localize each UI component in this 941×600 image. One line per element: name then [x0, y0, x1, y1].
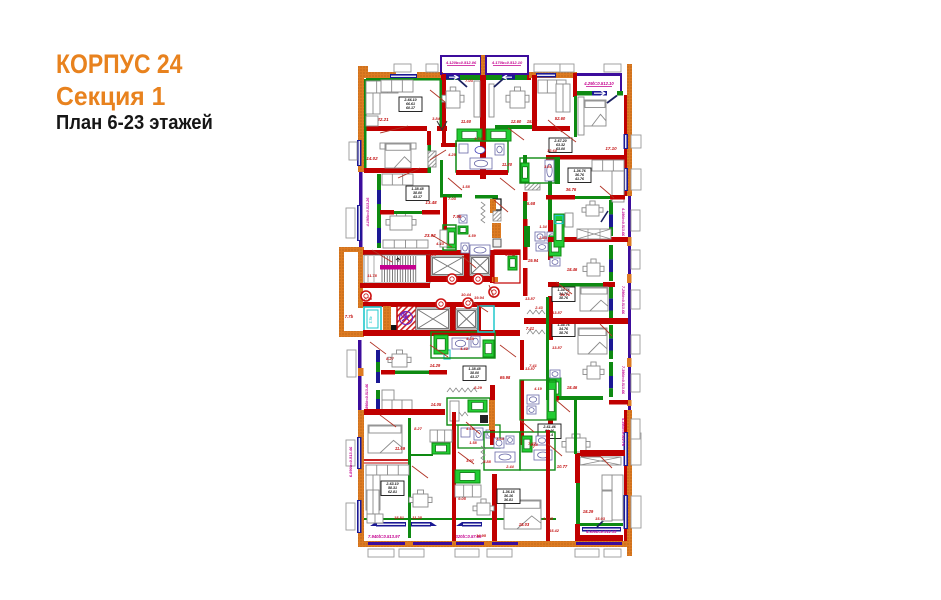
svg-text:11.60: 11.60 [461, 119, 472, 124]
svg-text:3.84: 3.84 [432, 116, 441, 121]
svg-text:12.60: 12.60 [511, 119, 522, 124]
svg-text:6.890b=0.513.46: 6.890b=0.513.46 [348, 446, 353, 477]
svg-text:69.98: 69.98 [500, 375, 511, 380]
svg-text:1.58: 1.58 [462, 184, 471, 189]
svg-text:7.7b: 7.7b [364, 296, 373, 301]
svg-text:7.03: 7.03 [465, 78, 474, 83]
svg-text:43.17: 43.17 [412, 195, 423, 199]
svg-text:14.05: 14.05 [431, 402, 442, 407]
svg-text:4.25: 4.25 [427, 252, 437, 257]
svg-text:62.81: 62.81 [388, 490, 397, 494]
svg-text:34.76: 34.76 [560, 292, 571, 297]
svg-text:3.81: 3.81 [544, 164, 553, 169]
svg-text:4.29b=0.512.10: 4.29b=0.512.10 [583, 81, 614, 86]
svg-text:4.190b=0.513.26: 4.190b=0.513.26 [366, 197, 370, 228]
svg-text:14.29: 14.29 [430, 363, 441, 368]
svg-text:18.46: 18.46 [567, 267, 578, 272]
svg-text:4.300b=0.512.15: 4.300b=0.512.15 [585, 529, 617, 534]
svg-text:4.390b=0.512.76: 4.390b=0.512.76 [621, 417, 625, 447]
svg-text:18.46: 18.46 [567, 385, 578, 390]
svg-text:2.44: 2.44 [505, 465, 514, 469]
svg-text:7.7b: 7.7b [345, 314, 354, 319]
svg-text:9.05: 9.05 [458, 496, 467, 501]
svg-text:36.81: 36.81 [504, 498, 513, 502]
svg-text:7.290b=0.513.66: 7.290b=0.513.66 [621, 286, 625, 315]
svg-text:63.00: 63.00 [556, 147, 565, 151]
svg-text:14.95: 14.95 [543, 516, 554, 521]
svg-text:7.96: 7.96 [453, 214, 462, 219]
svg-text:41.76: 41.76 [574, 177, 585, 181]
svg-text:3.64: 3.64 [496, 436, 505, 441]
svg-text:19.94: 19.94 [528, 258, 539, 263]
svg-text:19.94: 19.94 [505, 252, 516, 257]
svg-text:19.94: 19.94 [474, 295, 485, 300]
svg-text:17.10: 17.10 [605, 146, 617, 151]
svg-text:2.43: 2.43 [534, 306, 543, 310]
svg-text:7.03: 7.03 [448, 196, 457, 201]
svg-text:12.60: 12.60 [547, 148, 558, 153]
svg-text:5.88: 5.88 [483, 459, 492, 464]
svg-text:14.02: 14.02 [366, 156, 378, 161]
svg-text:1.34: 1.34 [539, 225, 547, 229]
svg-text:11.78: 11.78 [367, 273, 377, 278]
svg-text:60.17: 60.17 [406, 106, 416, 110]
svg-text:7.7b: 7.7b [369, 316, 373, 324]
svg-text:43.17: 43.17 [469, 375, 480, 379]
svg-text:5.68: 5.68 [527, 201, 536, 206]
svg-text:4.25: 4.25 [447, 152, 457, 157]
svg-text:10.77: 10.77 [557, 464, 568, 469]
svg-text:38.76: 38.76 [559, 331, 569, 335]
svg-text:52.60: 52.60 [555, 116, 566, 121]
svg-text:13.87: 13.87 [552, 345, 563, 350]
svg-text:4.170b=0.512.10: 4.170b=0.512.10 [491, 60, 523, 65]
svg-text:8.29: 8.29 [474, 385, 483, 390]
svg-text:7.390b=0.513.66: 7.390b=0.513.66 [621, 366, 625, 395]
svg-text:1.58: 1.58 [469, 441, 477, 445]
svg-text:4.43: 4.43 [435, 241, 445, 246]
svg-text:11.25: 11.25 [412, 515, 422, 520]
svg-text:8.27: 8.27 [414, 426, 423, 431]
svg-text:1.34: 1.34 [474, 136, 483, 141]
svg-text:4.39: 4.39 [465, 336, 475, 341]
svg-text:6.890b=0.513.46: 6.890b=0.513.46 [365, 383, 369, 412]
svg-text:8.27: 8.27 [386, 356, 395, 361]
svg-text:15.81: 15.81 [394, 515, 405, 520]
svg-text:10.44: 10.44 [461, 292, 472, 297]
svg-text:2.43: 2.43 [538, 236, 547, 240]
svg-text:13.87: 13.87 [525, 296, 536, 301]
svg-text:4.59: 4.59 [467, 234, 476, 238]
svg-text:11.69: 11.69 [395, 446, 406, 451]
svg-text:36.76: 36.76 [566, 187, 577, 192]
svg-text:4.43: 4.43 [459, 346, 469, 351]
svg-text:11.20: 11.20 [502, 162, 513, 167]
svg-text:3.97: 3.97 [466, 458, 475, 463]
svg-text:13.87: 13.87 [525, 366, 536, 371]
svg-text:7.940b=0.513.97: 7.940b=0.513.97 [368, 534, 400, 539]
svg-text:4.120b=0.512.06: 4.120b=0.512.06 [445, 60, 477, 65]
svg-text:4.19: 4.19 [533, 387, 542, 391]
svg-text:15.42: 15.42 [549, 528, 560, 533]
svg-text:15.03: 15.03 [519, 522, 530, 527]
svg-text:4.39: 4.39 [465, 426, 475, 431]
svg-text:23.92: 23.92 [423, 233, 436, 238]
svg-text:4.190b=0.513.66: 4.190b=0.513.66 [621, 207, 625, 237]
svg-text:13.87: 13.87 [552, 310, 563, 315]
svg-text:14.95: 14.95 [476, 533, 487, 538]
svg-text:7.47: 7.47 [528, 441, 537, 446]
svg-text:15.03: 15.03 [595, 516, 606, 521]
svg-text:18.29: 18.29 [583, 509, 594, 514]
